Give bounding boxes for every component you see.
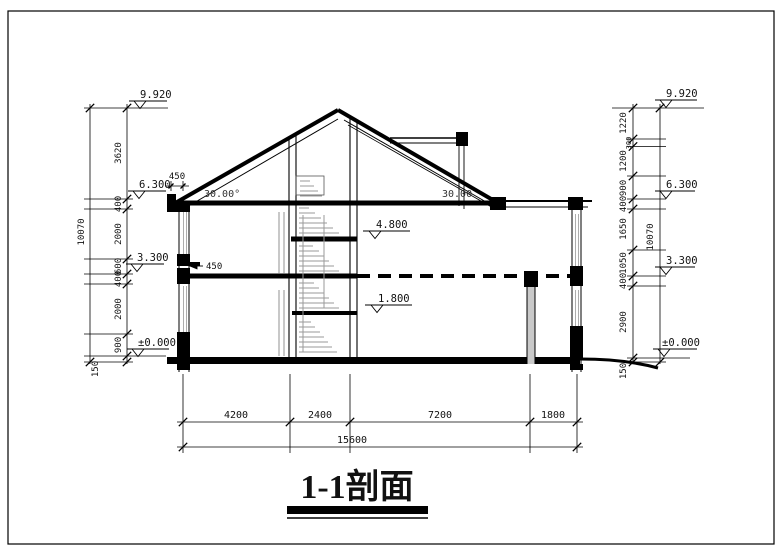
porch-beam-right [568,197,583,210]
roof-angle-label: 30.00° [204,189,240,200]
dim-label: 900 [619,180,629,196]
dim-label: 300 [625,137,633,150]
dim-label: 1050 [619,252,629,274]
elevation-label: ±0.000 [662,337,700,349]
dim-label-eave-overhang: 450 [169,172,185,182]
wall-left-beam1 [177,254,190,266]
dim-label: 150 [619,363,629,379]
building-section [167,110,658,372]
dim-label: 1200 [619,150,629,172]
dim-label: 1220 [619,112,629,134]
elevation-label: ±0.000 [138,337,176,349]
dim-label-ledge: 450 [206,262,222,272]
dim-label: 1650 [619,218,629,240]
title-underline-thick [287,506,428,514]
dim-label: 900 [114,337,124,353]
elevation-triangle-icon [660,267,672,275]
elevation-label: 3.300 [137,252,169,264]
porch-beam-left [490,197,506,210]
roof-angle-label: 30.00 [442,189,472,200]
dim-label: 2900 [619,311,629,333]
dim-label: 2400 [308,410,332,421]
partition-lines [279,212,284,356]
drawing-title: 1-1剖面 [300,468,413,506]
dim-label: 1800 [541,410,565,421]
stair-steps [299,181,339,352]
dim-label: 400 [114,271,124,287]
elevation-label: 6.300 [666,179,698,191]
elevation-triangle-icon [369,231,381,239]
elevation-label: 1.800 [378,293,410,305]
dim-label: 4200 [224,410,248,421]
elevation-label: 9.920 [666,88,698,100]
ground-slab [167,357,580,364]
dim-label: 3620 [114,142,124,164]
dim-label: 2000 [114,298,124,320]
section-drawing: 9.920 6.300 3.300 ±0.000 9.920 6.300 3.3… [0,0,780,553]
dim-total-label: 15600 [337,435,367,446]
dim-total-label: 10070 [646,223,656,250]
roof-slope-right [338,110,498,203]
elevation-triangle-icon [132,349,144,357]
elevation-label: 9.920 [140,89,172,101]
elevation-label: 4.800 [376,219,408,231]
elevation-triangle-icon [131,264,143,272]
dim-label: 2000 [114,223,124,245]
wall-left-beam2 [177,268,190,284]
elevation-triangle-icon [660,191,672,199]
drawing-sheet: 9.920 6.300 3.300 ±0.000 9.920 6.300 3.3… [0,0,780,553]
wall-right-beam [570,266,583,286]
elevation-label: 3.300 [666,255,698,267]
dormer-post [456,132,468,146]
dim-total-label: 10070 [77,218,87,245]
elevation-triangle-icon [371,305,383,313]
elevation-triangle-icon [134,101,146,109]
elevation-triangle-icon [133,191,145,199]
wall-interior-fill [527,286,535,364]
dim-label: 150 [91,361,101,377]
wall-interior-beam [524,271,538,287]
dim-label: 400 [114,196,124,212]
wall-left-sill [177,332,190,358]
roof-slope-left [170,110,338,206]
dim-label: 7200 [428,410,452,421]
dim-label: 400 [619,196,629,212]
elevation-label: 6.300 [139,179,171,191]
wall-right-sill [570,326,583,358]
dim-label: 400 [619,273,629,289]
